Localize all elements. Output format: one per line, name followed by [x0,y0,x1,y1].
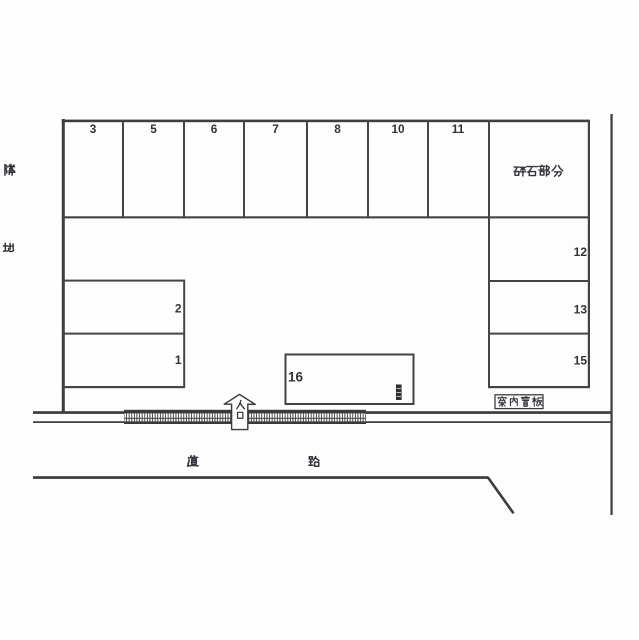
svg-text:5: 5 [150,122,157,136]
svg-text:6: 6 [211,122,218,136]
svg-text:10: 10 [391,122,405,136]
svg-text:8: 8 [334,122,341,136]
svg-text:16: 16 [288,370,304,385]
svg-text:13: 13 [574,302,588,316]
svg-text:1: 1 [175,353,182,367]
svg-text:3: 3 [90,122,97,136]
svg-text:11: 11 [452,122,465,136]
svg-text:15: 15 [574,353,588,367]
svg-text:7: 7 [272,122,279,136]
svg-text:12: 12 [574,245,588,259]
svg-text:2: 2 [175,301,182,315]
